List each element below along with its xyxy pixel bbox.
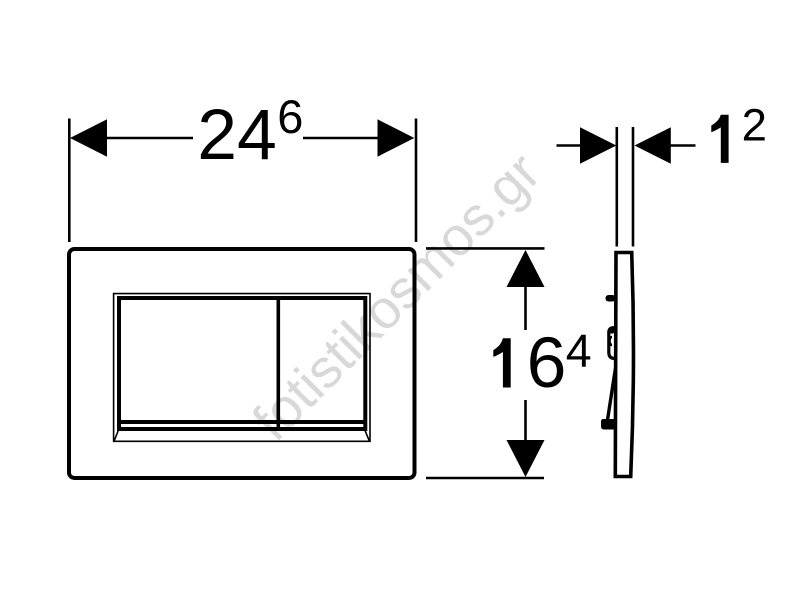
svg-text:4: 4	[566, 324, 592, 376]
svg-text:24: 24	[197, 95, 277, 175]
svg-text:2: 2	[742, 100, 767, 151]
svg-text:6: 6	[527, 323, 567, 403]
svg-text:6: 6	[277, 90, 303, 143]
